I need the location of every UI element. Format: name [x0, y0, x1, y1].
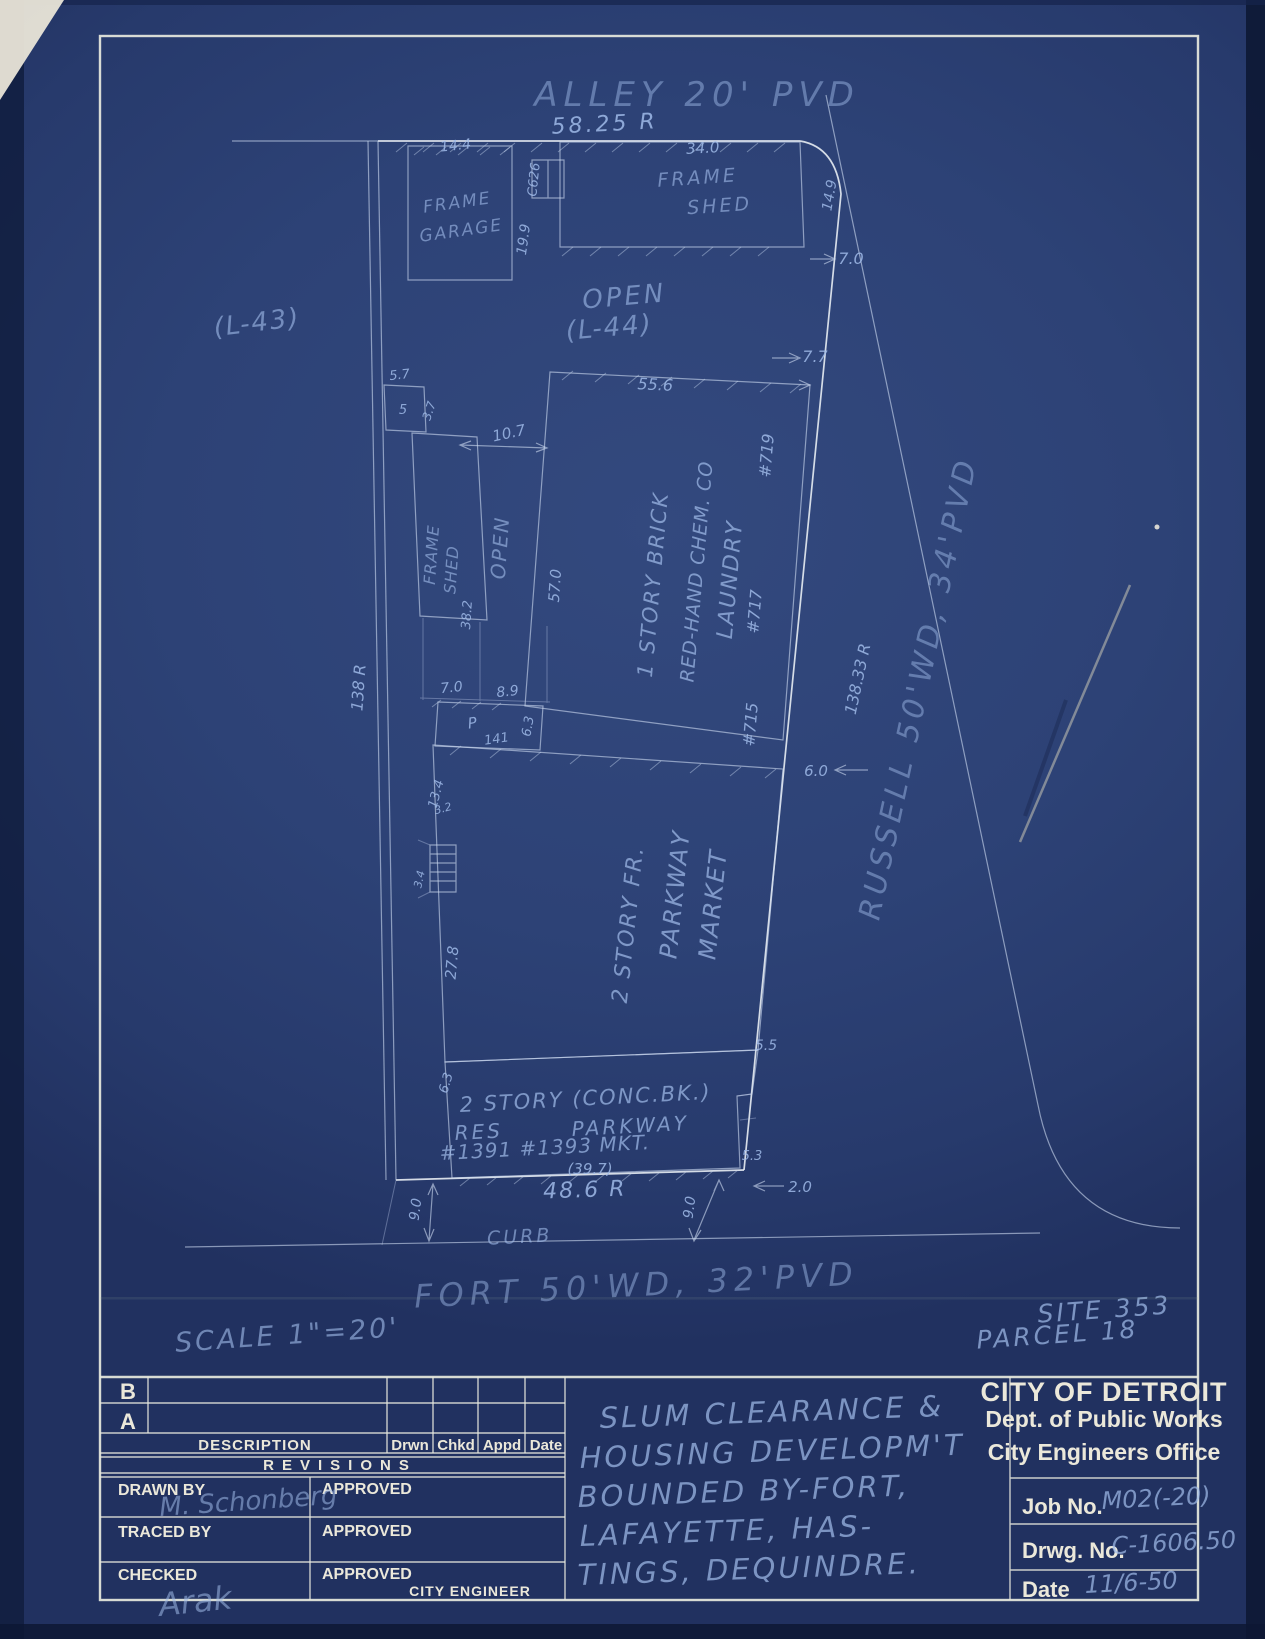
- meter-label: C626: [525, 162, 543, 197]
- brick-label-line3: LAUNDRY: [713, 519, 748, 640]
- approved-label-3: APPROVED: [322, 1566, 412, 1583]
- plan-lot-lines: [232, 141, 841, 1245]
- alley-frontage-dim: 58.25 R: [551, 109, 658, 140]
- dim-14-4: 14.4: [439, 136, 472, 155]
- dim-19-9: 19.9: [514, 223, 534, 256]
- garage-label-line2: GARAGE: [418, 215, 504, 247]
- dim-10-7: 10.7: [491, 421, 528, 446]
- project-title-line3: BOUNDED BY-FORT,: [577, 1468, 911, 1514]
- lot-open-label: OPEN: [581, 278, 667, 315]
- dim-57-0: 57.0: [545, 568, 565, 603]
- approved-label-2: APPROVED: [322, 1523, 412, 1540]
- dim-5-5: 5.5: [755, 1038, 777, 1054]
- fort-frontage-dim: 48.6 R: [543, 1177, 627, 1205]
- revision-row-b-label: B: [120, 1379, 136, 1404]
- dim-5: 5: [399, 403, 407, 418]
- dim-38-2: 38.2: [459, 600, 476, 630]
- dim-6-3-market: 6.3: [437, 1071, 457, 1095]
- lot-l43-label: (L-43): [212, 303, 302, 343]
- porch-label: P: [467, 713, 479, 732]
- city-engineer-label: CITY ENGINEER: [409, 1583, 531, 1599]
- revision-appd-header: Appd: [483, 1437, 521, 1454]
- open-strip-label: OPEN: [486, 515, 514, 580]
- house-no-717: #717: [743, 588, 766, 634]
- alley-street-label: ALLEY 20' PVD: [532, 75, 860, 115]
- market-label-line3: MARKET: [693, 847, 733, 961]
- brick-label-line1: 1 STORY BRICK: [633, 490, 673, 678]
- job-no-label: Job No.: [1022, 1494, 1103, 1519]
- scratch-mark-light: [1020, 585, 1130, 842]
- traced-by-label: TRACED BY: [118, 1524, 212, 1541]
- paper-edge-right: [1246, 0, 1265, 1639]
- plan-labels: ALLEY 20' PVD 58.25 R (L-43) OPEN (L-44)…: [174, 75, 1172, 1359]
- shed-top-line1: FRAME: [657, 164, 739, 192]
- paper-speck: [1155, 525, 1160, 530]
- parcel-note: PARCEL 18: [975, 1314, 1139, 1354]
- date-value: 11/6-50: [1084, 1566, 1178, 1599]
- market-label-line1: 2 STORY FR.: [608, 844, 649, 1004]
- agency-dept: Dept. of Public Works: [985, 1406, 1222, 1432]
- project-title-line4: LAFAYETTE, HAS-: [579, 1509, 875, 1553]
- dim-7-7: 7.7: [802, 347, 828, 366]
- garage-label-line1: FRAME: [422, 188, 493, 217]
- dim-6-0: 6.0: [804, 762, 828, 780]
- checked-label: CHECKED: [118, 1567, 197, 1584]
- russell-street-label: RUSSELL 50'WD, 34'PVD: [852, 453, 985, 923]
- lot-l44-label: (L-44): [565, 309, 655, 346]
- scan-line-artifact: [100, 1297, 1198, 1300]
- dim-7-0-alley: 7.0: [838, 249, 863, 268]
- shed-left-line1: FRAME: [420, 524, 443, 585]
- revision-date-header: Date: [530, 1437, 563, 1454]
- dim-9-0-east: 9.0: [681, 1195, 700, 1219]
- dim-9-0-west: 9.0: [407, 1197, 426, 1221]
- shed-top-line2: SHED: [686, 193, 752, 219]
- revision-row-a-label: A: [120, 1409, 136, 1434]
- dim-8-9: 8.9: [496, 683, 520, 701]
- paper-edge-top: [0, 0, 1265, 5]
- market-label-line2: PARKWAY: [654, 828, 695, 960]
- scale-note: SCALE 1"=20': [174, 1312, 401, 1359]
- sheet-border: [100, 36, 1198, 1600]
- project-title-line1: SLUM CLEARANCE &: [599, 1389, 945, 1435]
- dim-6-3-porch: 6.3: [519, 715, 537, 738]
- agency-office: City Engineers Office: [988, 1439, 1221, 1465]
- shed-left-line2: SHED: [440, 545, 462, 595]
- drwg-no-label: Drwg. No.: [1022, 1538, 1125, 1563]
- dim-14-9: 14.9: [819, 178, 840, 212]
- russell-frontage-dim: 138.33 R: [841, 642, 875, 717]
- scratch-mark-dark: [1025, 700, 1066, 816]
- revisions-title: REVISIONS: [263, 1457, 417, 1474]
- dim-5-3: 5.3: [742, 1149, 763, 1164]
- dim-55-6: 55.6: [637, 374, 674, 395]
- dim-3-4: 3.4: [411, 869, 427, 889]
- paper-edge-left: [0, 0, 24, 1639]
- dim-34-0: 34.0: [686, 138, 720, 158]
- torn-corner: [0, 0, 64, 100]
- fort-street-label: FORT 50'WD, 32'PVD: [413, 1254, 859, 1315]
- date-label: Date: [1022, 1577, 1070, 1602]
- job-no-value: M02(-20): [1101, 1481, 1211, 1515]
- house-no-715: #715: [739, 702, 762, 747]
- paper-edge-bottom: [0, 1624, 1265, 1639]
- revision-chkd-header: Chkd: [437, 1437, 475, 1454]
- conc-width-dim: (39.7): [567, 1160, 612, 1178]
- dim-27-8: 27.8: [442, 945, 463, 980]
- west-frontage-dim: 138 R: [347, 664, 369, 712]
- agency-name: CITY OF DETROIT: [980, 1377, 1227, 1407]
- title-block: B A DESCRIPTION Drwn Chkd Appd Date REVI…: [100, 1377, 1237, 1624]
- house-no-719: #719: [755, 433, 778, 478]
- porch-number: 141: [483, 730, 510, 748]
- dim-2-0: 2.0: [788, 1178, 812, 1196]
- revision-description-header: DESCRIPTION: [198, 1437, 312, 1454]
- drwg-no-value: C-1606.50: [1111, 1526, 1237, 1560]
- dim-5-7: 5.7: [389, 367, 412, 384]
- revision-drwn-header: Drwn: [391, 1437, 429, 1454]
- project-title-line5: TINGS, DEQUINDRE.: [577, 1546, 921, 1592]
- checked-signature: Arak: [155, 1578, 235, 1624]
- curb-label: CURB: [486, 1224, 552, 1249]
- dim-7-0-yard: 7.0: [440, 679, 464, 697]
- blueprint-sheet: ALLEY 20' PVD 58.25 R (L-43) OPEN (L-44)…: [0, 0, 1265, 1639]
- brick-label-line2: RED-HAND CHEM. CO: [676, 460, 717, 683]
- dim-3-7: 3.7: [420, 399, 439, 422]
- site-plan-drawing: ALLEY 20' PVD 58.25 R (L-43) OPEN (L-44)…: [0, 0, 1265, 1639]
